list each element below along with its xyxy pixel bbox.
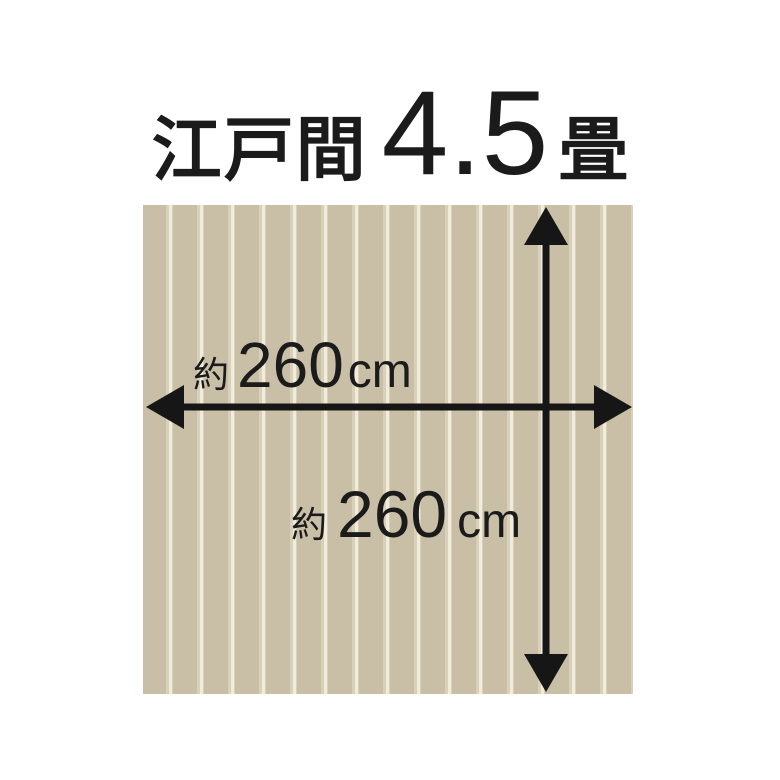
width-unit: cm — [348, 348, 412, 396]
width-approx-prefix: 約 — [193, 357, 229, 393]
height-dimension-label: 約 260 cm — [291, 481, 521, 547]
title-size-number: 4.5 — [382, 73, 549, 193]
page-title: 江戸間 4.5 畳 — [0, 73, 780, 193]
height-approx-prefix: 約 — [291, 507, 327, 543]
rug-swatch — [143, 205, 633, 694]
width-value: 260 — [237, 333, 344, 397]
width-dimension-label: 約 260 cm — [193, 333, 412, 397]
title-region-name: 江戸間 — [152, 115, 368, 185]
title-size-unit: 畳 — [558, 115, 628, 185]
height-unit: cm — [457, 498, 521, 546]
height-value: 260 — [337, 481, 447, 547]
rug-size-diagram: 江戸間 4.5 畳 約 260 cm 約 260 cm — [0, 0, 780, 780]
